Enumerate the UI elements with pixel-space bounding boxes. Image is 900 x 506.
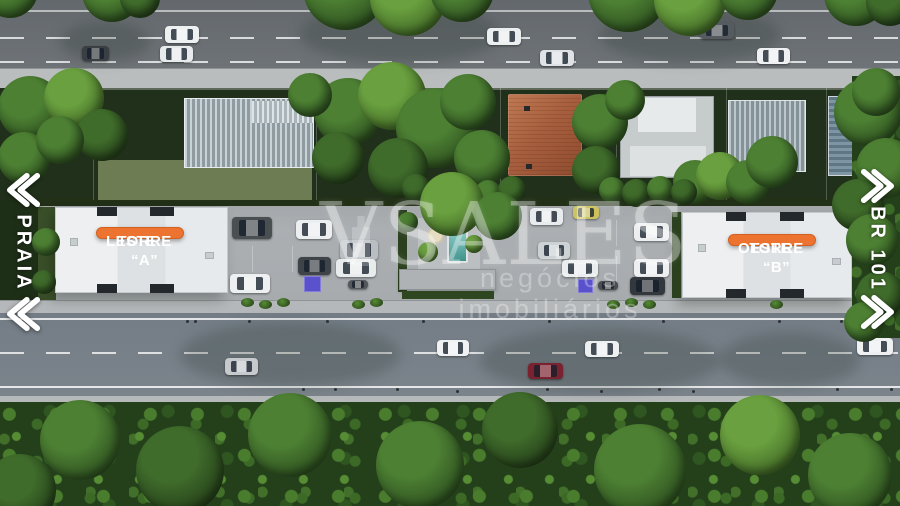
house-terracotta-roof xyxy=(508,94,582,176)
house-metal-roof-upper xyxy=(252,101,314,123)
house-modern-upper-volume xyxy=(638,98,696,132)
tower-a-badge: TORRE “A” LESTE xyxy=(96,227,184,239)
tower-a-roof-notch xyxy=(150,284,174,293)
house-metal-roof-2 xyxy=(728,100,806,172)
rooftop-ac-unit xyxy=(832,258,841,265)
tower-b-badge: TORRE “B” OESTE xyxy=(728,234,816,246)
tower-b-roof-notch xyxy=(780,212,804,221)
top-sidewalk xyxy=(0,68,900,88)
tower-a-badge-line2: LESTE xyxy=(106,233,156,252)
tower-b-roof-notch xyxy=(726,212,746,221)
top-road-edge-line xyxy=(0,10,900,12)
top-road-dashed-line xyxy=(0,37,900,39)
rooftop-ac-unit xyxy=(205,252,214,259)
bottom-road-edge-line2 xyxy=(0,386,900,388)
lot-fence xyxy=(93,88,94,200)
forest-band xyxy=(0,402,900,506)
rooftop-ac-unit xyxy=(698,244,706,252)
br101-road-label: BR 101 xyxy=(866,206,889,292)
tower-b-badge-line2: OESTE xyxy=(738,240,791,259)
top-road-dashed-line2 xyxy=(0,61,900,63)
tower-a-roof-notch xyxy=(97,207,117,216)
lot-fence xyxy=(726,88,727,200)
tower-a-roof-notch xyxy=(97,284,117,293)
tower-b-roof-notch xyxy=(780,289,804,298)
bottom-road-center-line xyxy=(0,352,900,354)
garage-roof xyxy=(462,138,492,172)
lot-fence xyxy=(826,88,827,200)
vsales-tagline: negócios imobiliários xyxy=(385,263,715,325)
chevron-right-icon xyxy=(860,292,894,332)
chevron-left-icon xyxy=(7,170,41,210)
parking-stall-line xyxy=(252,246,253,272)
bottom-road xyxy=(0,313,900,396)
lot-fence xyxy=(616,88,617,200)
roof-vent xyxy=(526,164,532,169)
house-modern-lower-volume xyxy=(630,146,706,176)
lot-fence xyxy=(500,88,501,200)
parking-stall-line xyxy=(292,246,293,272)
chevron-left-icon xyxy=(7,294,41,334)
tower-a-roof-notch xyxy=(150,207,174,216)
aerial-site-plan: TORRE “A” LESTE TORRE “B” OESTE PRAIA BR… xyxy=(0,0,900,506)
lot-boundary-line xyxy=(45,88,855,90)
rooftop-ac-unit xyxy=(70,238,78,246)
roof-vent xyxy=(524,106,530,111)
chevron-right-icon xyxy=(860,166,894,206)
tower-b-roof-notch xyxy=(726,289,746,298)
site-west-lawn xyxy=(38,207,56,300)
praia-road-label: PRAIA xyxy=(12,214,35,291)
lot-fence xyxy=(316,88,317,200)
